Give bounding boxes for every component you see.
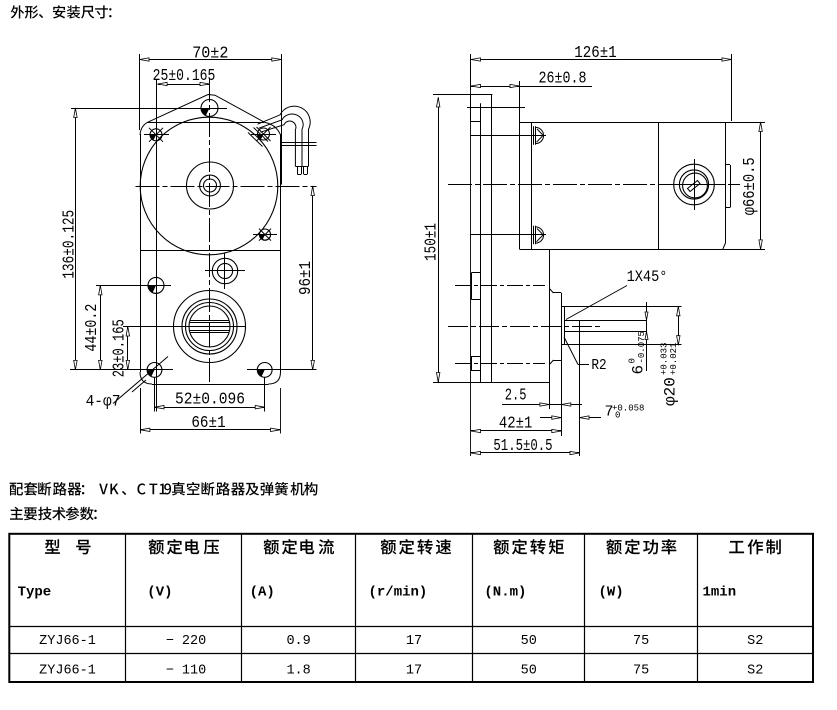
svg-text:126±1: 126±1 — [574, 44, 616, 63]
svg-text:0: 0 — [615, 411, 620, 421]
svg-text:2.5: 2.5 — [505, 387, 527, 406]
svg-text:75: 75 — [633, 663, 649, 678]
svg-text:50: 50 — [521, 634, 537, 649]
svg-text:96±1: 96±1 — [297, 261, 316, 295]
svg-text:51.5±0.5: 51.5±0.5 — [493, 437, 552, 456]
svg-text:6: 6 — [630, 365, 648, 375]
svg-text:(V): (V) — [147, 585, 172, 601]
svg-text:+0.033: +0.033 — [660, 343, 670, 375]
svg-text:0: 0 — [628, 358, 638, 363]
svg-text:Type: Type — [18, 585, 52, 601]
svg-text:(r/min): (r/min) — [369, 585, 428, 601]
svg-text:75: 75 — [633, 634, 649, 649]
svg-text:1min: 1min — [703, 585, 737, 601]
svg-text:− 220: − 220 — [166, 634, 207, 649]
svg-text:ZYJ66-1: ZYJ66-1 — [39, 634, 96, 649]
svg-text:− 110: − 110 — [166, 663, 207, 678]
svg-text:-0.075: -0.075 — [637, 331, 647, 363]
svg-text:(A): (A) — [250, 585, 275, 601]
svg-text:S2: S2 — [747, 634, 763, 649]
svg-text:70±2: 70±2 — [192, 44, 228, 63]
svg-text:52±0.096: 52±0.096 — [175, 391, 245, 410]
svg-text:23±0.165: 23±0.165 — [111, 319, 130, 377]
svg-text:(W): (W) — [599, 585, 624, 601]
svg-text:φ66±0.5: φ66±0.5 — [741, 157, 760, 215]
svg-text:R2: R2 — [591, 357, 606, 374]
svg-text:1X45°: 1X45° — [627, 268, 668, 286]
svg-text:S2: S2 — [747, 663, 763, 678]
svg-text:17: 17 — [406, 663, 422, 678]
svg-text:17: 17 — [406, 634, 422, 649]
svg-text:ZYJ66-1: ZYJ66-1 — [39, 663, 96, 678]
svg-text:136±0.125: 136±0.125 — [61, 210, 80, 279]
svg-text:1.8: 1.8 — [286, 663, 310, 678]
svg-text:44±0.2: 44±0.2 — [83, 304, 102, 352]
svg-text:φ20: φ20 — [662, 377, 680, 406]
svg-text:50: 50 — [521, 663, 537, 678]
svg-text:26±0.8: 26±0.8 — [539, 70, 587, 89]
svg-text:0.9: 0.9 — [286, 634, 310, 649]
svg-text:+0.021: +0.021 — [669, 343, 679, 375]
svg-text:(N.m): (N.m) — [484, 585, 526, 601]
